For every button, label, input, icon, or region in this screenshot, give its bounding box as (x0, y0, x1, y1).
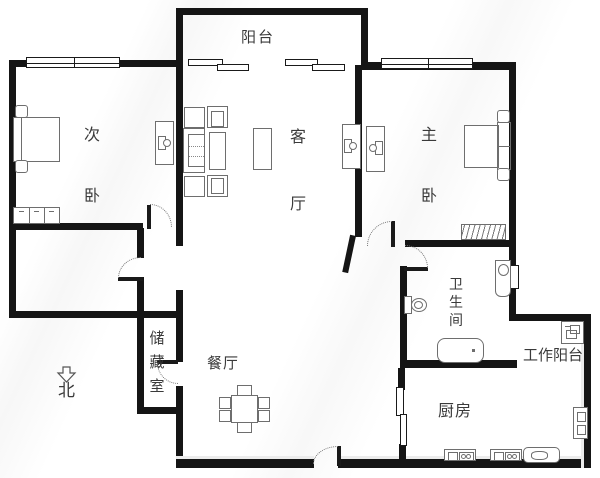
living-tv-screen (349, 142, 357, 150)
living-side-table-top (184, 107, 205, 128)
wall-bathroom-top (405, 240, 512, 247)
bathtub (437, 338, 484, 363)
room-label-storage: 储藏室 (148, 326, 166, 398)
room-label-kitchen: 厨房 (438, 403, 472, 419)
wall-balcony-top (178, 8, 368, 15)
wall-corridor-west-upper (137, 228, 144, 258)
room-label-living-room: 客厅 (289, 103, 307, 237)
master-bed (464, 125, 499, 168)
master-wardrobe (461, 224, 506, 240)
living-sofa-seat (188, 134, 205, 167)
wall-bedroom2-bottom (12, 223, 143, 230)
floor-plan: 北 阳台 次卧 客厅 主卧 卫生间 储藏室 餐厅 厨房 工作阳台 (0, 0, 600, 478)
dining-chair-top (237, 385, 252, 396)
living-armchair-top-seat (211, 111, 224, 127)
master-window (381, 58, 473, 69)
dining-chair-bottom (237, 422, 252, 433)
room-label-master-bedroom: 主卧 (420, 104, 438, 226)
living-sofa-cushion-line2 (189, 156, 204, 157)
wall-storage-east (176, 290, 183, 362)
wall-exterior-east (584, 314, 591, 468)
balcony-slider-left-panel2 (217, 64, 249, 71)
room-label-work-balcony: 工作阳台 (523, 348, 583, 363)
washbasin-bowl (498, 264, 509, 276)
wall-storage-west (137, 318, 144, 414)
washing-machine (561, 321, 584, 344)
wall-workbalcony-top (509, 314, 591, 321)
room-label-dining: 餐厅 (207, 356, 239, 371)
dining-chair-left1 (219, 397, 231, 409)
room-label-second-bedroom: 次卧 (83, 104, 101, 226)
wall-exterior-west (9, 60, 16, 318)
bedroom2-dresser (13, 207, 60, 224)
dining-chair-left2 (219, 410, 231, 422)
entry-door-arc (313, 446, 338, 464)
master-nightstand-top (497, 110, 510, 123)
water-heater (573, 407, 588, 439)
living-side-table-bottom (184, 176, 205, 197)
bedroom2-window (26, 57, 120, 68)
wall-hallway-slanted (342, 235, 356, 273)
master-door-arc (367, 221, 392, 246)
living-coffee-table (209, 132, 226, 170)
wall-interior-horizontal (9, 311, 182, 318)
living-sofa-cushion-line1 (189, 146, 204, 147)
small-room-door-arc (118, 257, 141, 278)
living-armchair-bottom-seat (211, 178, 224, 194)
dining-chair-right2 (258, 410, 270, 422)
dining-chair-right1 (258, 397, 270, 409)
kitchen-slider-panel1 (396, 387, 404, 416)
wall-bottom-left (176, 459, 314, 468)
master-tv-screen (369, 144, 377, 152)
master-bed-headboard (497, 122, 511, 170)
dining-table (231, 395, 258, 423)
north-label: 北 (58, 383, 75, 400)
bathroom-door-arc (405, 245, 428, 268)
balcony-slider-right-panel2 (312, 64, 345, 71)
kitchen-slider-panel2 (400, 414, 407, 446)
master-nightstand-bottom (497, 168, 510, 181)
bedroom2-bed-headboard (13, 117, 22, 162)
bedroom2-nightstand-top (15, 105, 28, 118)
kitchen-sink-basin (531, 451, 548, 460)
room-label-bathroom: 卫生间 (447, 276, 465, 330)
kitchen-counter-unit2 (490, 449, 522, 461)
wall-balcony-east (361, 8, 368, 68)
toilet-bowl-inner (414, 301, 423, 309)
bathtub-drain (472, 349, 475, 352)
wall-dining-west (176, 386, 183, 468)
bedroom2-tv-screen (163, 139, 171, 147)
bedroom2-door-arc (150, 204, 172, 227)
wall-kitchen-west-stub2 (399, 444, 406, 461)
living-tv-stand (253, 128, 272, 170)
room-label-balcony: 阳台 (241, 30, 275, 45)
kitchen-counter-unit1 (444, 449, 476, 461)
wall-bathroom-west (400, 266, 407, 368)
bedroom2-nightstand-bottom (15, 160, 28, 173)
wall-livingroom-west (176, 8, 183, 246)
